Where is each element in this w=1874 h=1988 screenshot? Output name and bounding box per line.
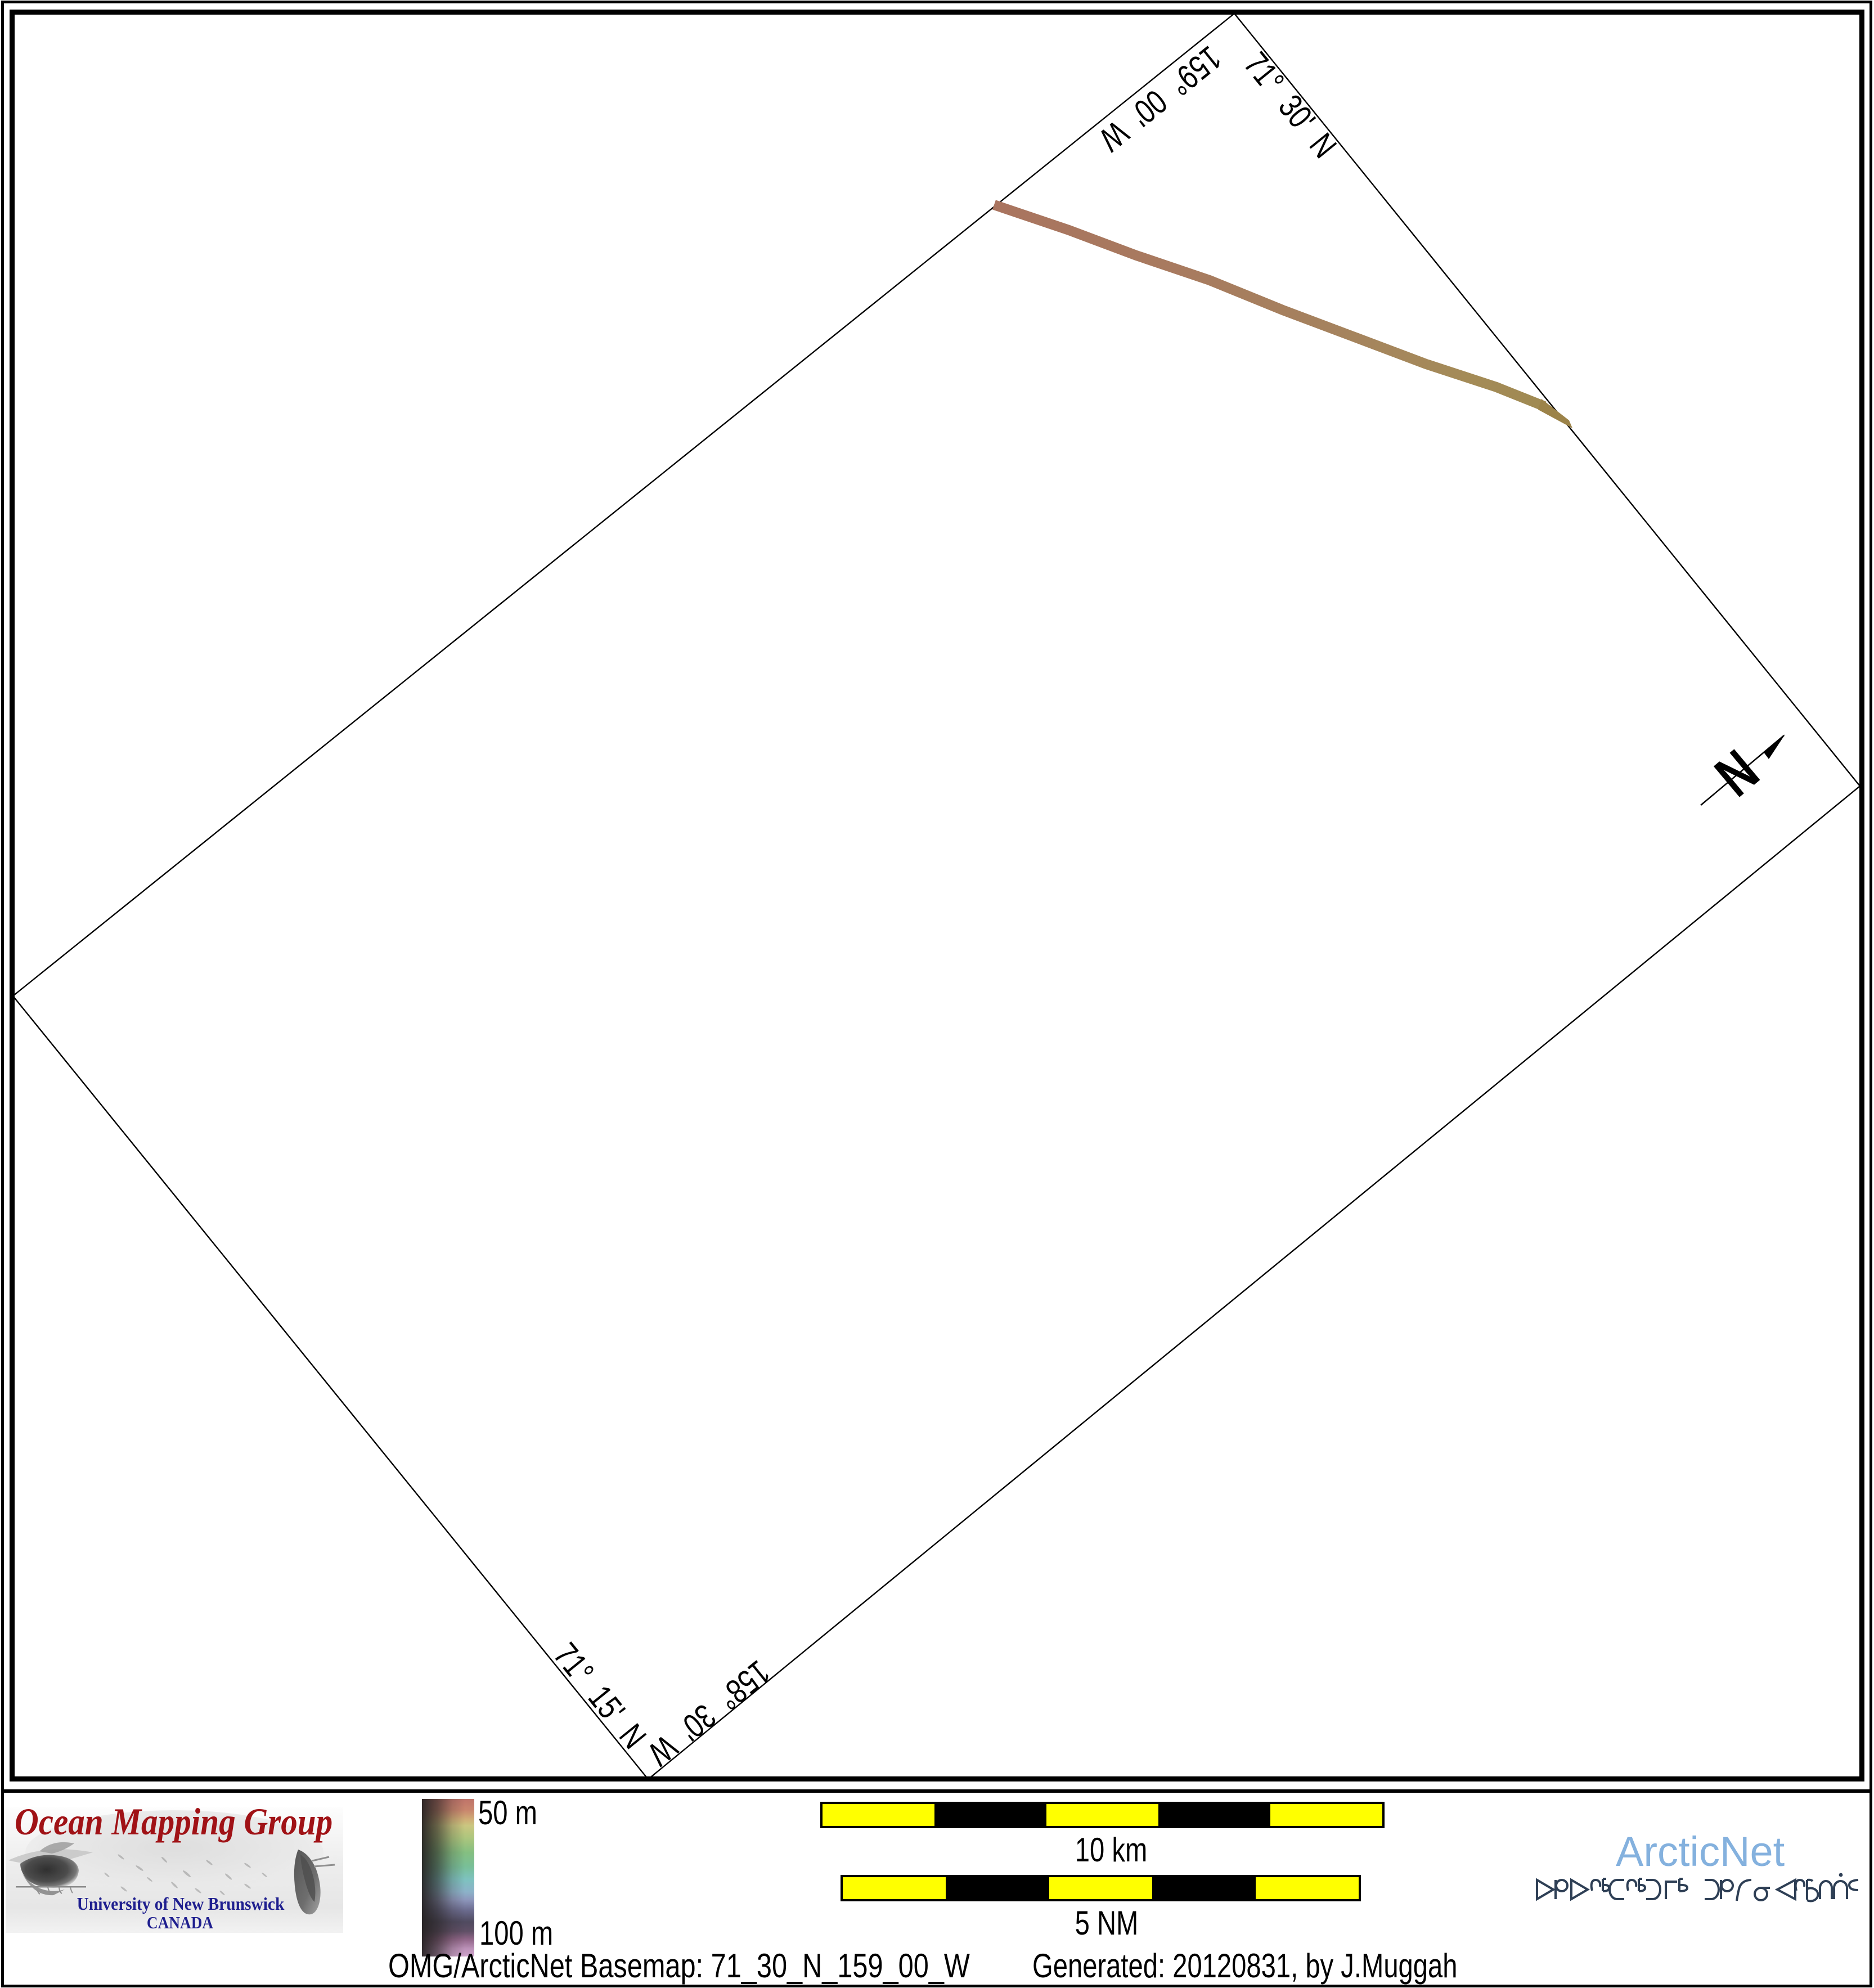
svg-text:Generated: 20120831, by J.Mugg: Generated: 20120831, by J.Muggah (1032, 1947, 1458, 1985)
svg-text:159° 00' W: 159° 00' W (1092, 39, 1228, 159)
svg-text:Ocean Mapping Group: Ocean Mapping Group (15, 1800, 332, 1843)
svg-text:5 NM: 5 NM (1075, 1904, 1139, 1942)
svg-text:71° 30' N: 71° 30' N (1237, 46, 1343, 165)
svg-text:158° 30' W: 158° 30' W (641, 1653, 777, 1773)
svg-text:10 km: 10 km (1075, 1831, 1147, 1869)
svg-text:N: N (1704, 738, 1770, 809)
svg-text:ArcticNet: ArcticNet (1616, 1828, 1785, 1875)
svg-text:CANADA: CANADA (147, 1913, 213, 1932)
svg-text:50 m: 50 m (478, 1794, 537, 1832)
svg-text:University of New Brunswick: University of New Brunswick (77, 1894, 285, 1914)
svg-text:OMG/ArcticNet Basemap: 71_30_N: OMG/ArcticNet Basemap: 71_30_N_159_00_W (388, 1946, 970, 1985)
svg-text:71° 15' N: 71° 15' N (546, 1636, 653, 1756)
